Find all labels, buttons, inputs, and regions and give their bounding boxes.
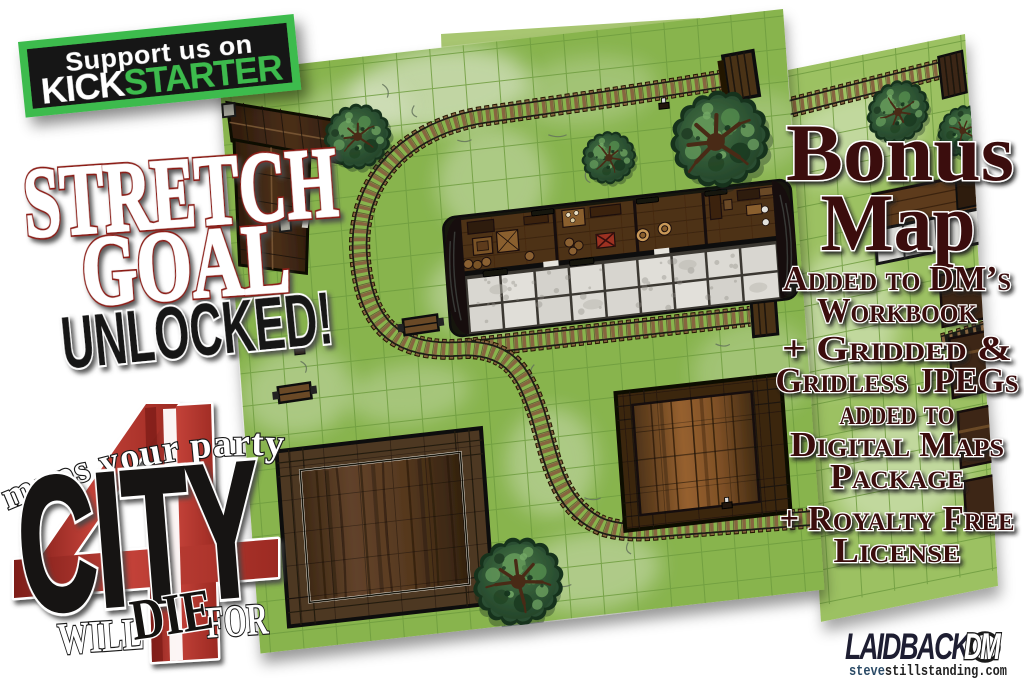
svg-text:LAIDBACK: LAIDBACK (845, 625, 973, 667)
svg-text:DIE: DIE (126, 576, 217, 653)
svg-text:stevestillstanding.com: stevestillstanding.com (849, 663, 1007, 680)
svg-text:License: License (834, 531, 961, 570)
svg-text:Workbook: Workbook (817, 291, 978, 330)
svg-text:Package: Package (830, 457, 964, 496)
svg-text:Map: Map (821, 177, 976, 268)
svg-text:DM: DM (964, 625, 1001, 668)
